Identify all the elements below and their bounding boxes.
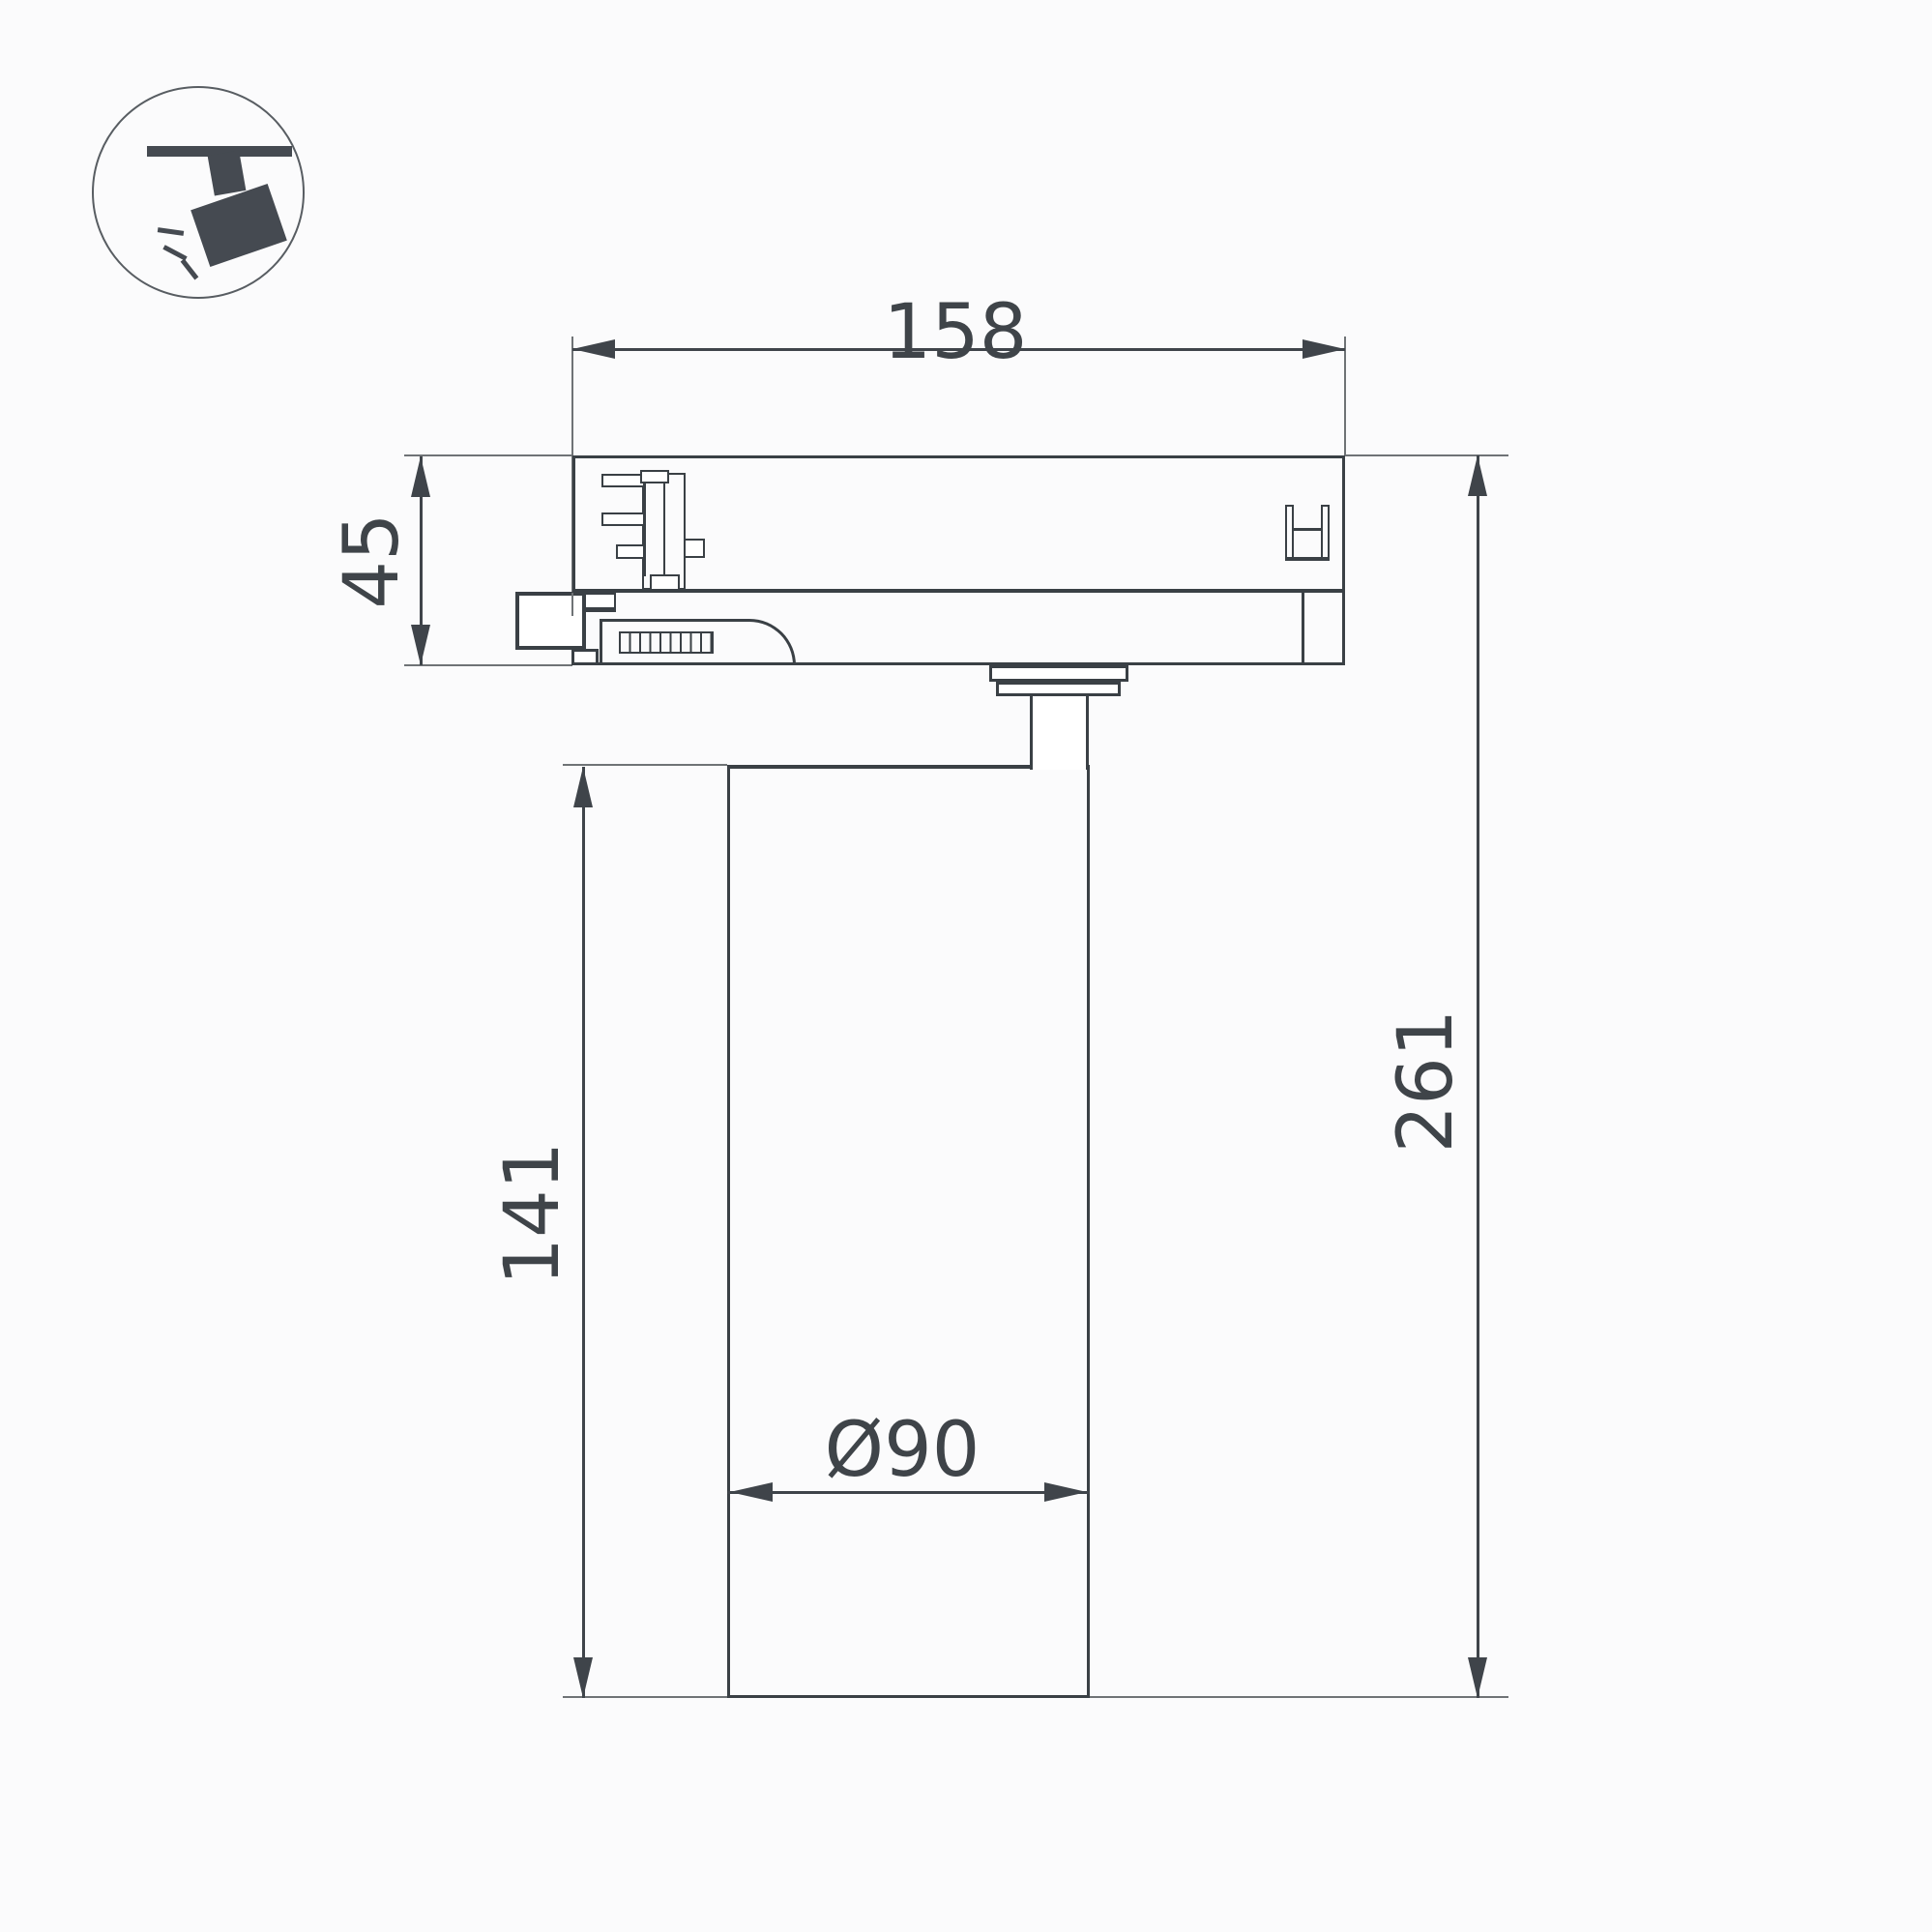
lock-notch xyxy=(584,593,616,609)
dim-158-arrow-right xyxy=(1303,339,1345,359)
track-clip-crossbar xyxy=(1293,528,1322,531)
dim-45-arrow-down xyxy=(411,625,430,665)
dip-switch-grille xyxy=(619,631,714,654)
dim-141-line xyxy=(582,767,585,1698)
contact-prong-bottom xyxy=(616,544,645,559)
track-clip-base xyxy=(1285,557,1330,561)
dim-261-label: 261 xyxy=(1389,1010,1464,1154)
contact-prong-middle xyxy=(601,512,645,526)
dim-158-label: 158 xyxy=(884,295,1028,370)
dim-diameter-arrow-right xyxy=(1044,1482,1087,1502)
track-clip-leg-right xyxy=(1321,505,1330,561)
mount-flange-lower xyxy=(996,682,1121,696)
drawing-canvas: 158 45 141 261 xyxy=(0,0,1932,1932)
lock-step xyxy=(571,649,599,665)
track-clip-leg-left xyxy=(1285,505,1294,561)
dim-141-arrow-up xyxy=(573,767,593,807)
contact-tab-right xyxy=(684,539,705,558)
contact-prong-top xyxy=(601,474,645,487)
lock-notch-line xyxy=(584,609,616,612)
dim-diameter-arrow-left xyxy=(730,1482,773,1502)
contact-screw xyxy=(644,483,665,576)
dim-158-extension-through-lever xyxy=(571,593,573,616)
dim-261-arrow-up xyxy=(1468,455,1487,496)
icon-track-stem xyxy=(208,150,247,195)
contact-cap xyxy=(640,470,669,483)
lamp-body-top-edge xyxy=(727,765,1030,769)
dim-261-arrow-down xyxy=(1468,1657,1487,1698)
dim-158-arrow-left xyxy=(572,339,615,359)
swivel-stem xyxy=(1030,696,1089,770)
dim-diameter-label: Ø90 xyxy=(825,1413,981,1488)
lamp-body xyxy=(727,765,1090,1698)
dim-45-arrow-up xyxy=(411,456,430,497)
dim-261-line xyxy=(1477,455,1479,1698)
icon-circle xyxy=(92,86,305,299)
contact-foot xyxy=(650,574,680,591)
mount-flange-upper xyxy=(989,665,1128,682)
adapter-divider xyxy=(572,589,1345,593)
adapter-right-slot-line xyxy=(1302,591,1304,665)
dim-45-label: 45 xyxy=(335,512,410,608)
dim-141-extension-top xyxy=(563,764,727,766)
lock-lever xyxy=(515,592,586,650)
dim-141-label: 141 xyxy=(495,1142,571,1286)
dim-141-arrow-down xyxy=(573,1657,593,1698)
